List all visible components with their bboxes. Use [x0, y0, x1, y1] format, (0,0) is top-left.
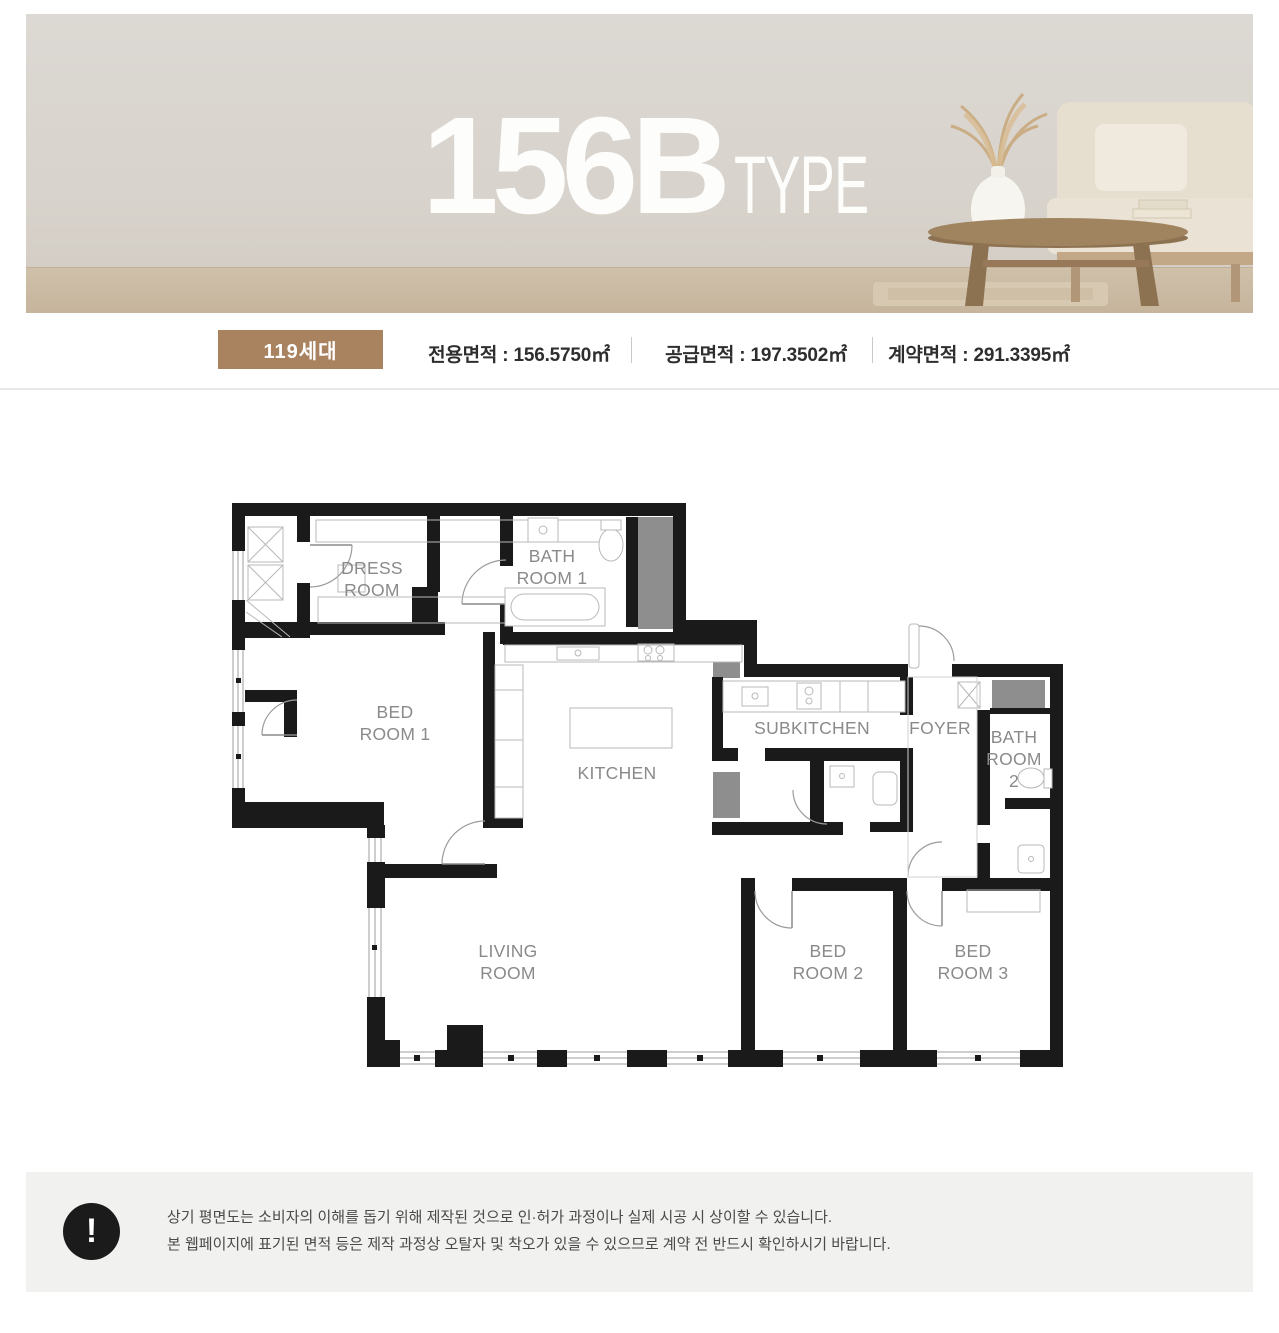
- page: 156B TYPE 119세대 전용면적 : 156.5750㎡ 공급면적 : …: [0, 0, 1279, 1333]
- section-divider: [0, 388, 1279, 390]
- contract-area: 계약면적 : 291.3395㎡: [888, 340, 1070, 367]
- disclaimer-line: 본 웹페이지에 표기된 면적 등은 제작 과정상 오탈자 및 착오가 있을 수 …: [167, 1231, 891, 1258]
- divider: [631, 337, 632, 363]
- room-label: ROOM: [344, 580, 400, 600]
- room-label: BED: [377, 702, 414, 722]
- exclusive-area: 전용면적 : 156.5750㎡: [428, 340, 610, 367]
- room-label: ROOM 3: [938, 963, 1009, 983]
- disclaimer-box: ! 상기 평면도는 소비자의 이해를 돕기 위해 제작된 것으로 인·허가 과정…: [26, 1172, 1253, 1292]
- exclamation-icon: !: [63, 1203, 120, 1260]
- room-label: BED: [810, 941, 847, 961]
- household-count-badge: 119세대: [218, 330, 383, 369]
- room-label: FOYER: [909, 718, 971, 738]
- room-label: DRESS: [341, 558, 403, 578]
- hero-banner: 156B TYPE: [26, 14, 1253, 313]
- room-label: ROOM 1: [360, 724, 431, 744]
- room-label: SUBKITCHEN: [754, 718, 870, 738]
- unit-type-number: 156B: [422, 97, 724, 235]
- room-label: 2: [1009, 771, 1019, 791]
- room-label: ROOM 1: [517, 568, 588, 588]
- room-labels-group: DRESSROOMBATHROOM 1BEDROOM 1KITCHENSUBKI…: [341, 546, 1042, 983]
- divider: [872, 337, 873, 363]
- room-label: ROOM: [480, 963, 536, 983]
- room-label: BATH: [529, 546, 576, 566]
- supply-area: 공급면적 : 197.3502㎡: [665, 340, 847, 367]
- hero-title: 156B TYPE: [422, 97, 944, 235]
- room-label: BED: [955, 941, 992, 961]
- room-label: ROOM: [986, 749, 1042, 769]
- disclaimer-text: 상기 평면도는 소비자의 이해를 돕기 위해 제작된 것으로 인·허가 과정이나…: [167, 1204, 891, 1258]
- room-label: BATH: [991, 727, 1038, 747]
- room-label: LIVING: [478, 941, 537, 961]
- info-bar: 119세대: [0, 320, 1279, 389]
- floor-plan: DRESSROOMBATHROOM 1BEDROOM 1KITCHENSUBKI…: [210, 490, 1080, 1080]
- disclaimer-line: 상기 평면도는 소비자의 이해를 돕기 위해 제작된 것으로 인·허가 과정이나…: [167, 1204, 891, 1231]
- unit-type-suffix: TYPE: [734, 145, 869, 227]
- room-label: ROOM 2: [793, 963, 864, 983]
- room-label: KITCHEN: [578, 763, 657, 783]
